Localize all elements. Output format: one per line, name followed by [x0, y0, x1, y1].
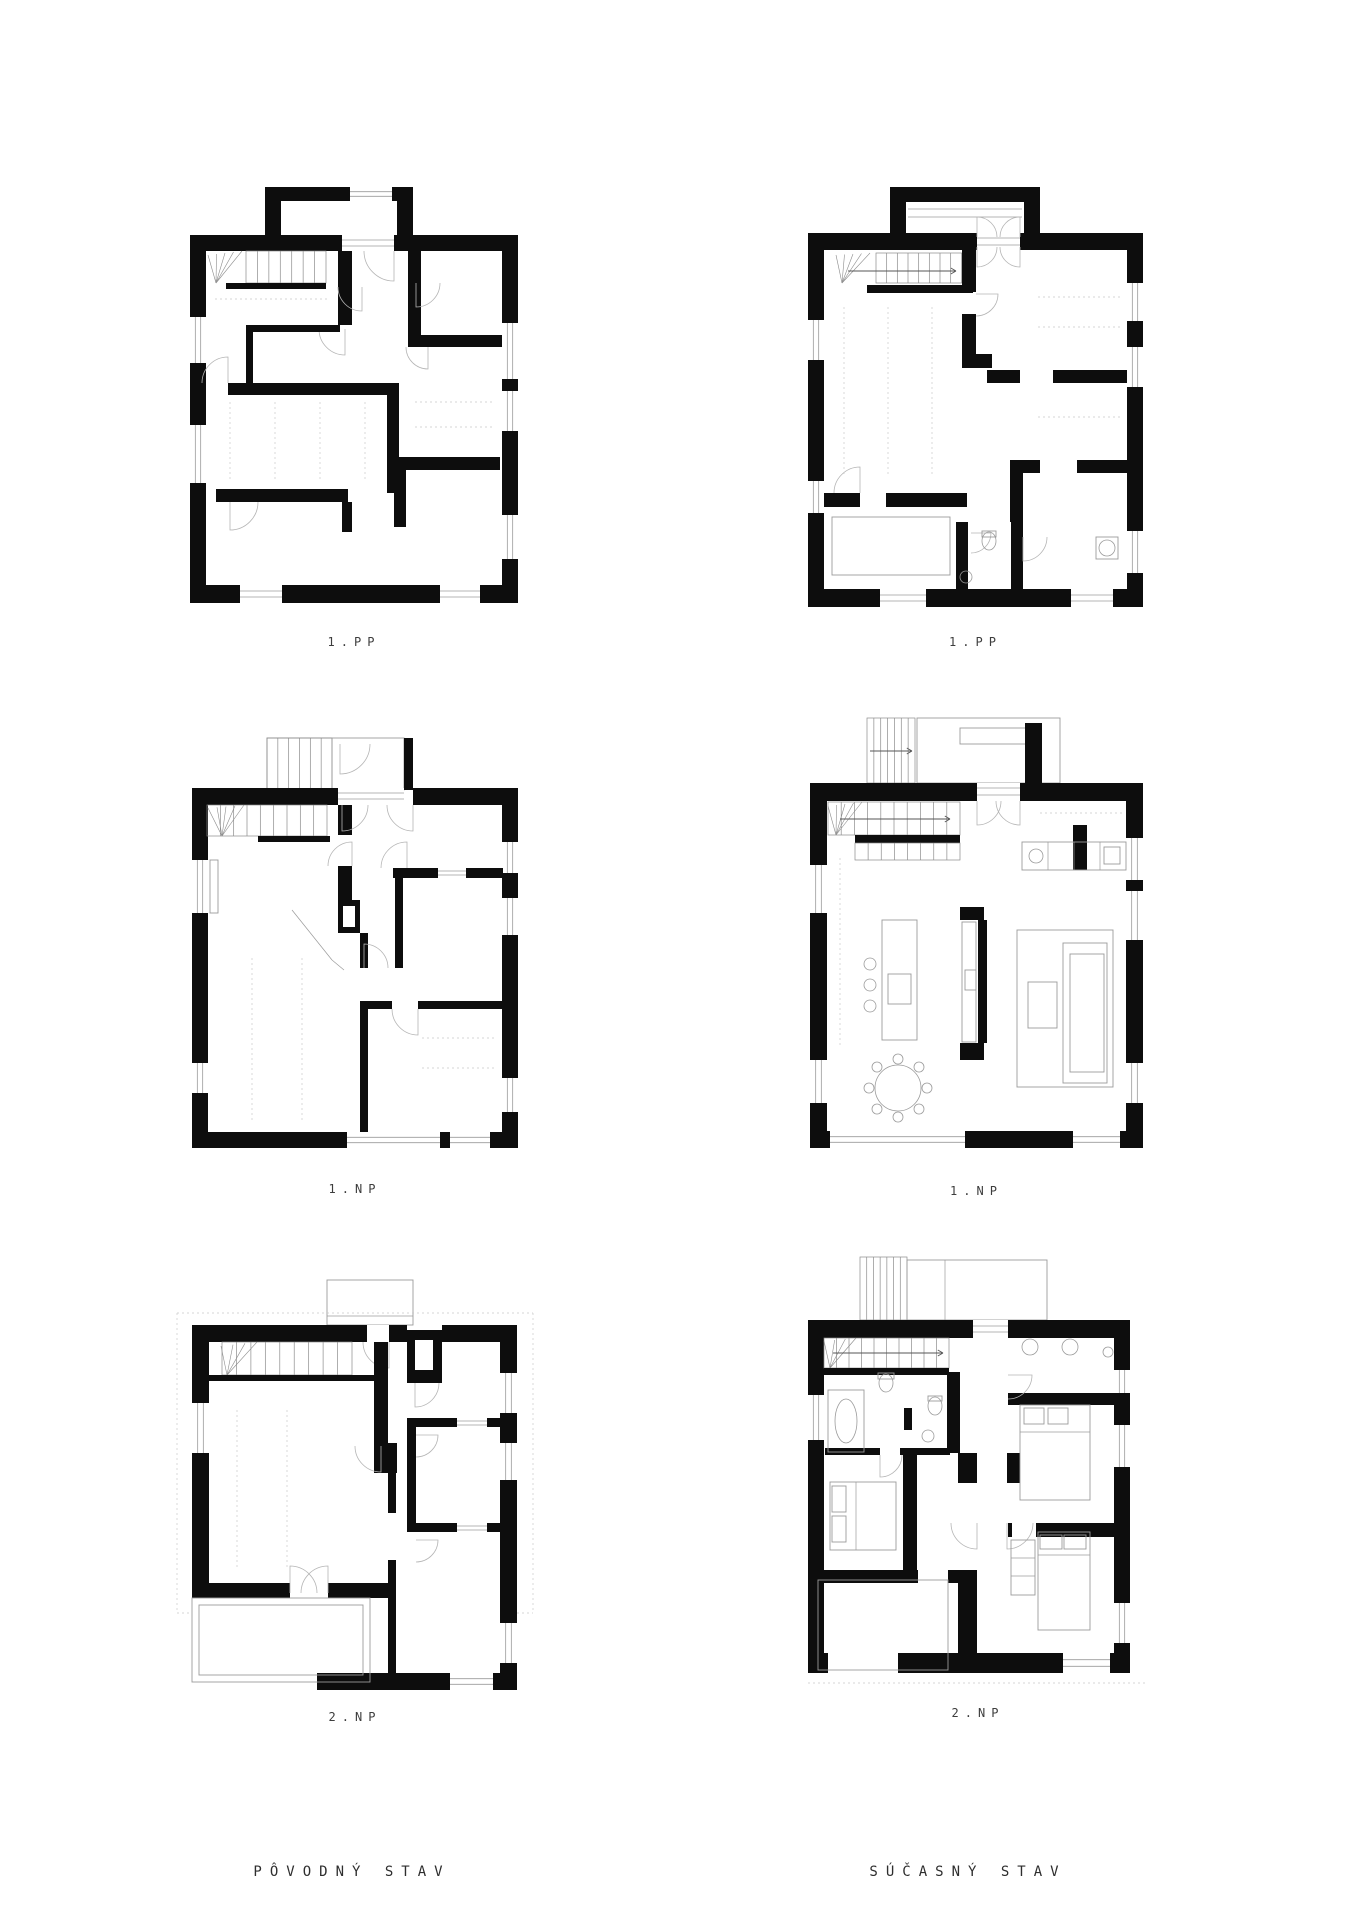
- floor-plan-label: 2.NP: [952, 1706, 1005, 1720]
- floor-plan-drawing-2np-original: [177, 1280, 533, 1720]
- floor-plan-label: 2.NP: [329, 1710, 382, 1724]
- floor-plan-1np-original: 1.NP: [192, 738, 518, 1148]
- column-caption-current-state: SÚČASNÝ STAV: [869, 1864, 1066, 1880]
- floor-plan-label: 1.PP: [949, 635, 1002, 649]
- floor-plan-label: 1.NP: [950, 1184, 1003, 1198]
- floor-plan-drawing-1pp-current: [808, 187, 1143, 607]
- floor-plan-1np-current: 1.NP: [810, 718, 1143, 1148]
- floor-plan-2np-original: 2.NP: [177, 1280, 533, 1720]
- floor-plan-2np-current: 2.NP: [808, 1240, 1148, 1700]
- floor-plan-1pp-original: 1.PP: [190, 187, 518, 607]
- column-caption-original-state: PÔVODNÝ STAV: [253, 1864, 450, 1880]
- floor-plan-label: 1.PP: [328, 635, 381, 649]
- floor-plan-drawing-1pp-original: [190, 187, 518, 607]
- floor-plan-label: 1.NP: [329, 1182, 382, 1196]
- architectural-drawing-sheet: 1.PP 1.PP 1.NP 1.NP 2.NP 2.NP PÔVODNÝ ST…: [0, 0, 1357, 1920]
- floor-plan-drawing-1np-current: [810, 718, 1143, 1148]
- floor-plan-drawing-1np-original: [192, 738, 518, 1148]
- floor-plan-1pp-current: 1.PP: [808, 187, 1143, 607]
- floor-plan-drawing-2np-current: [808, 1240, 1148, 1700]
